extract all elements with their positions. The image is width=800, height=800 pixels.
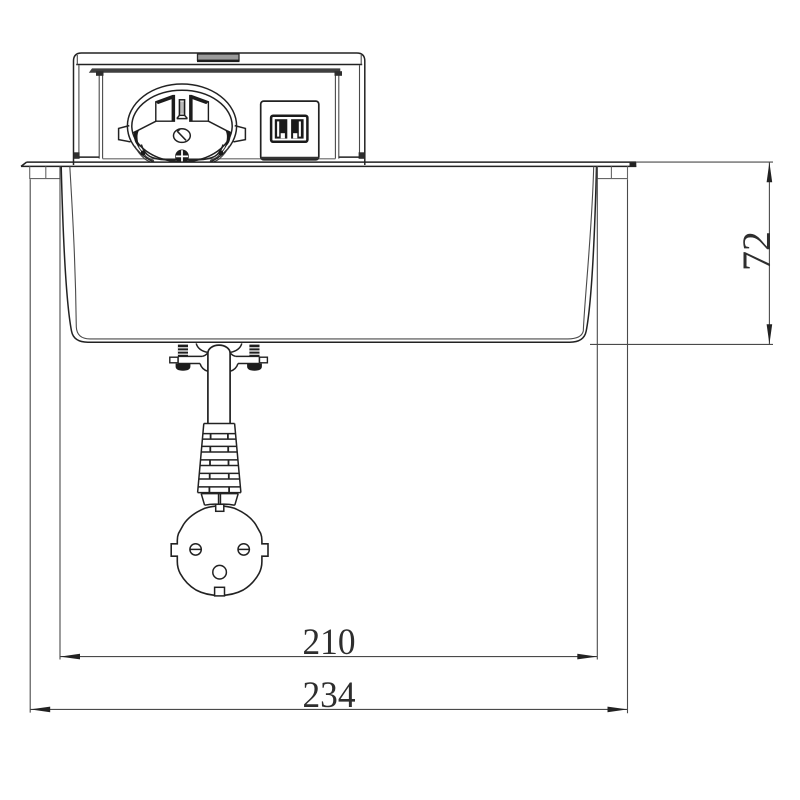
svg-text:72: 72: [734, 231, 779, 271]
svg-text:234: 234: [303, 675, 356, 716]
svg-text:210: 210: [303, 622, 356, 663]
